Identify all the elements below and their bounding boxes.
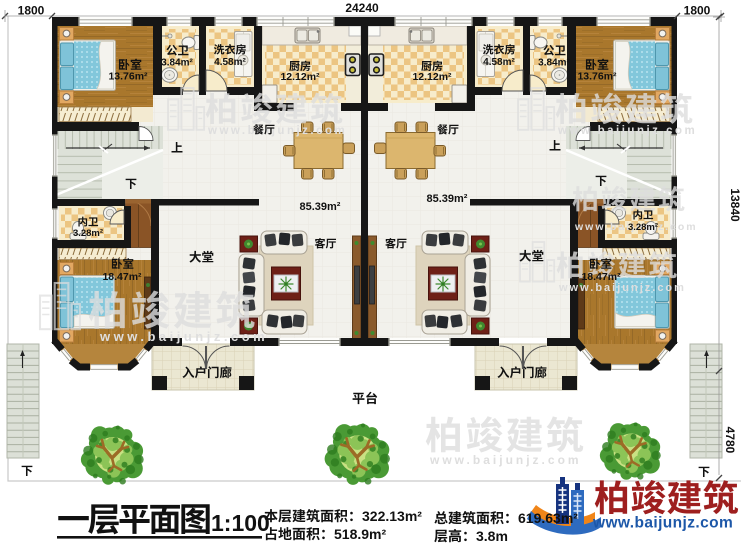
svg-text:1800: 1800 (684, 4, 711, 18)
svg-text:3.84m²: 3.84m² (161, 58, 193, 69)
svg-text:13840: 13840 (728, 188, 742, 222)
svg-text:85.39m²: 85.39m² (427, 193, 468, 205)
svg-text:www.baijunjz.com: www.baijunjz.com (558, 282, 686, 294)
svg-text:1:100: 1:100 (211, 510, 270, 536)
svg-text:1800: 1800 (18, 4, 45, 18)
svg-text:3.84m²: 3.84m² (538, 58, 570, 69)
svg-text:322.13m²: 322.13m² (362, 508, 422, 524)
svg-text:12.12m²: 12.12m² (280, 71, 320, 83)
svg-text:3.28m²: 3.28m² (73, 228, 103, 239)
svg-text:12.12m²: 12.12m² (412, 71, 452, 83)
svg-text:3.28m²: 3.28m² (628, 222, 658, 233)
svg-text:www.baijunjz.com: www.baijunjz.com (592, 515, 733, 532)
svg-text:www.baijunjz.com: www.baijunjz.com (429, 453, 582, 467)
svg-text:619.63m²: 619.63m² (518, 510, 578, 526)
svg-text:13.76m²: 13.76m² (577, 71, 617, 83)
svg-text:www.baijunjz.com: www.baijunjz.com (557, 125, 697, 137)
svg-text:18.47m²: 18.47m² (581, 271, 621, 283)
svg-text:www.baijunjz.com: www.baijunjz.com (207, 125, 347, 137)
svg-text:4.58m²: 4.58m² (214, 57, 246, 68)
svg-text:4.58m²: 4.58m² (483, 57, 515, 68)
svg-text:518.9m²: 518.9m² (334, 526, 386, 542)
svg-text:18.47m²: 18.47m² (102, 271, 142, 283)
svg-text:www.baijunjz.com: www.baijunjz.com (99, 329, 268, 344)
svg-text:3.8m: 3.8m (476, 528, 508, 543)
svg-text:13.76m²: 13.76m² (108, 71, 148, 83)
svg-text:4780: 4780 (723, 427, 737, 454)
svg-text:85.39m²: 85.39m² (300, 201, 341, 213)
svg-text:24240: 24240 (345, 1, 379, 15)
